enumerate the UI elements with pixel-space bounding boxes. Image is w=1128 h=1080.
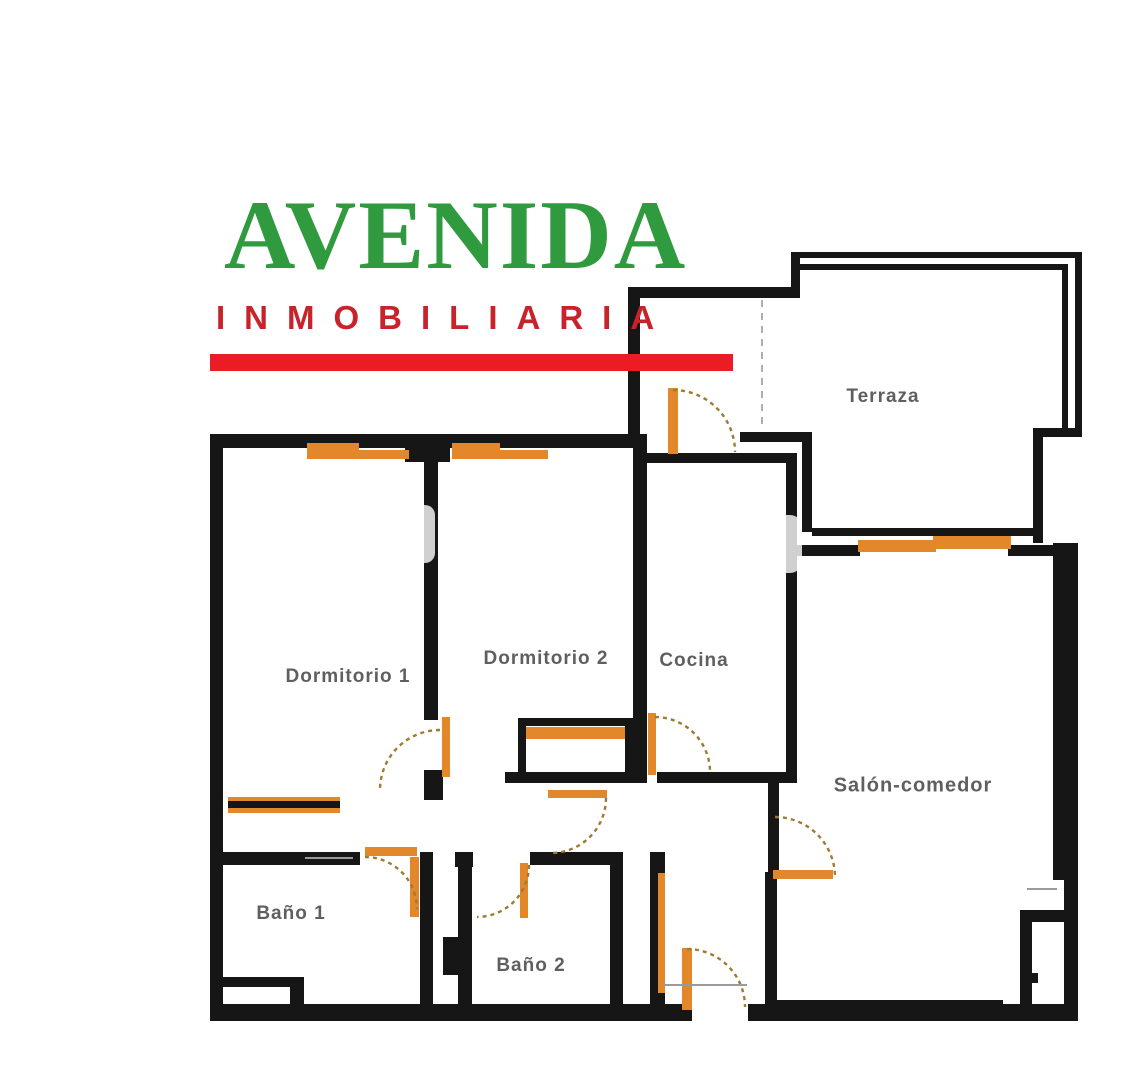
room-label-dormitorio-1: Dormitorio 1 [286,666,411,688]
walls [210,252,1082,1021]
room-label-terraza: Terraza [846,386,919,408]
floor-plan [0,0,1128,1080]
floorplan-page: AVENIDA INMOBILIARIA Terraza Dormitorio … [0,0,1128,1080]
room-label-salon-comedor: Salón-comedor [834,775,993,798]
room-label-bano-2: Baño 2 [496,955,565,977]
watermark-smudge [393,505,802,573]
room-label-bano-1: Baño 1 [256,903,325,925]
room-label-dormitorio-2: Dormitorio 2 [484,648,609,670]
room-label-cocina: Cocina [659,650,728,672]
